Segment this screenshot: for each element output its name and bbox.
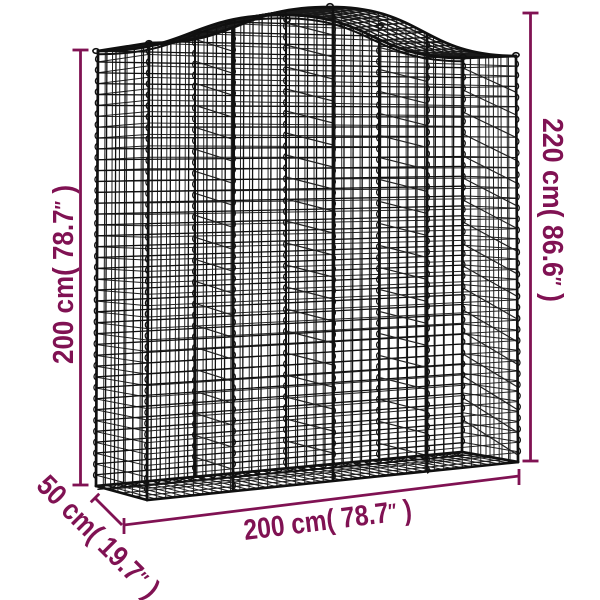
- svg-text:200 cm( 78.7″ ): 200 cm( 78.7″ ): [48, 185, 80, 364]
- svg-text:220 cm( 86.6″ ): 220 cm( 86.6″ ): [536, 118, 568, 302]
